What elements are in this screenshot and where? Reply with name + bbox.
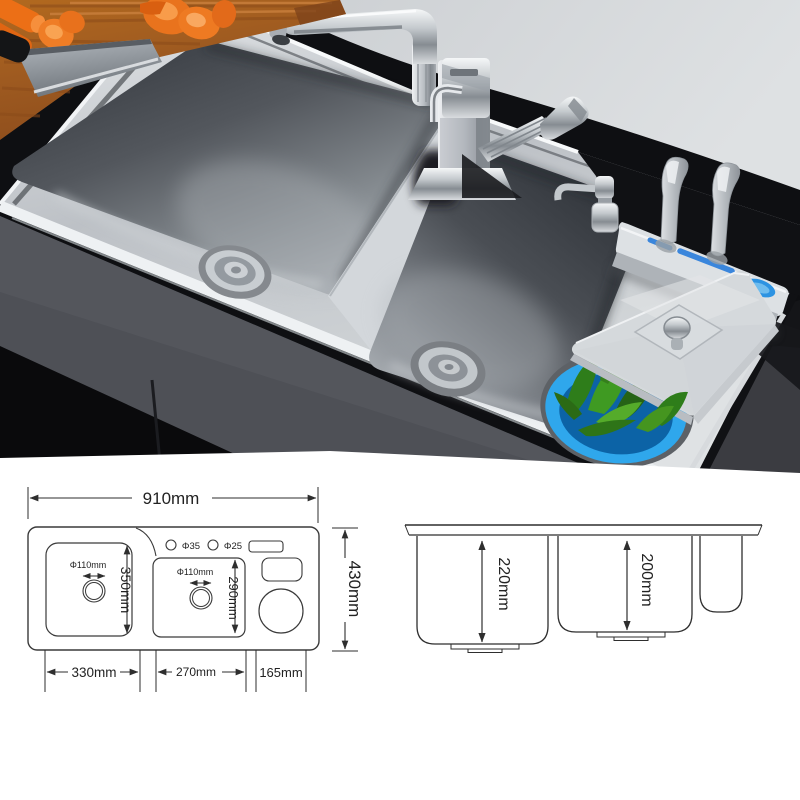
svg-text:290mm: 290mm (226, 576, 241, 619)
svg-text:Φ110mm: Φ110mm (177, 567, 214, 577)
svg-text:Φ110mm: Φ110mm (70, 560, 107, 570)
svg-text:910mm: 910mm (143, 489, 200, 508)
svg-text:350mm: 350mm (118, 567, 134, 614)
svg-text:330mm: 330mm (71, 665, 116, 680)
svg-text:200mm: 200mm (638, 553, 655, 606)
svg-text:Φ35: Φ35 (182, 541, 200, 552)
svg-text:220mm: 220mm (495, 557, 512, 610)
svg-text:270mm: 270mm (176, 665, 216, 679)
svg-text:430mm: 430mm (345, 561, 364, 618)
svg-text:Φ25: Φ25 (224, 541, 242, 552)
svg-text:165mm: 165mm (259, 665, 302, 680)
